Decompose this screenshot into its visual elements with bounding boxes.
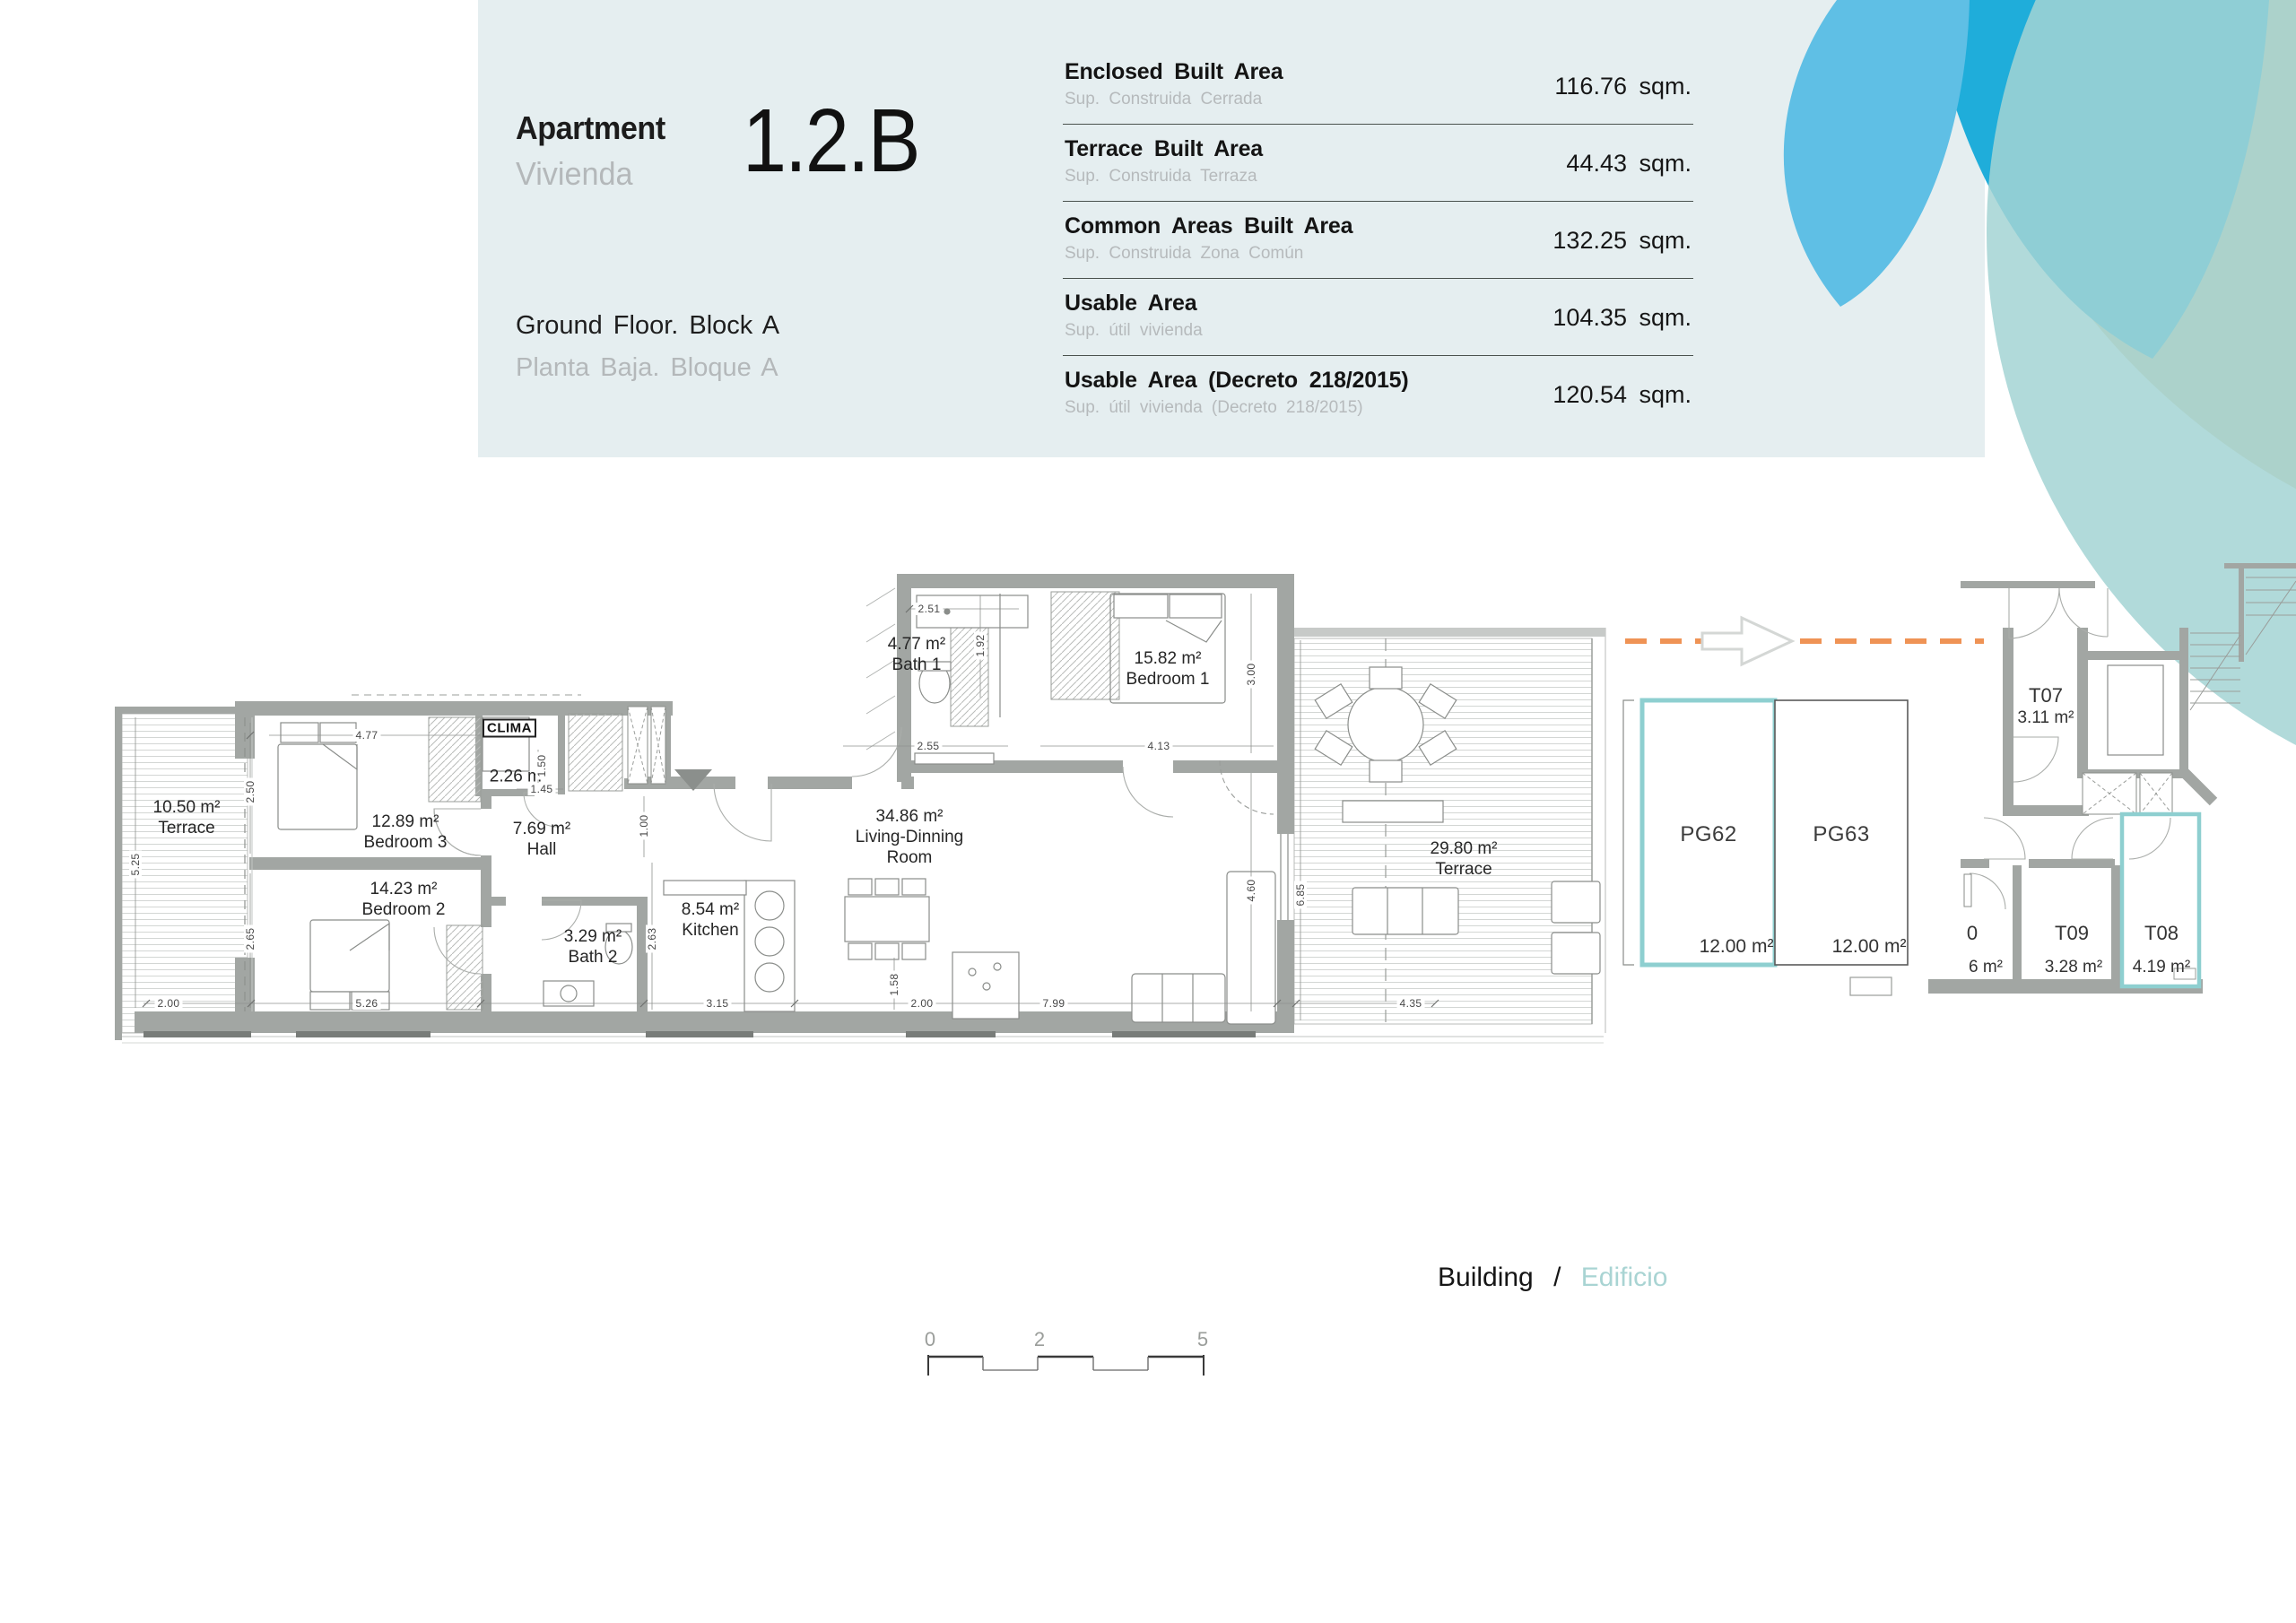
dim-label: 6.85 bbox=[1294, 881, 1307, 909]
storage-plan bbox=[1928, 563, 2296, 994]
room-label-bath2: 3.29 m² Bath 2 bbox=[564, 926, 622, 968]
area-label: Enclosed Built Area bbox=[1065, 59, 1283, 85]
parking-plan bbox=[1623, 618, 1984, 995]
room-label-terrace-right: 29.80 m² Terrace bbox=[1431, 838, 1498, 880]
scale-tick-2: 2 bbox=[1034, 1328, 1045, 1351]
dining-table bbox=[845, 879, 929, 959]
room-area: 12.89 m² bbox=[364, 811, 448, 832]
scale-bar-graphic bbox=[928, 1355, 1204, 1376]
dim-label: 1.45 bbox=[528, 783, 556, 795]
room-name: Terrace bbox=[1431, 859, 1498, 880]
area-label-es: Sup. útil vivienda bbox=[1065, 321, 1203, 341]
room-label-bath1: 4.77 m² Bath 1 bbox=[888, 634, 945, 675]
building-label: Building / Edificio bbox=[1438, 1263, 1668, 1293]
storage-id-partial: 0 bbox=[1967, 922, 1978, 945]
area-row: Enclosed Built Area Sup. Construida Cerr… bbox=[1063, 48, 1693, 124]
building-label-separator: / bbox=[1548, 1263, 1566, 1292]
area-value: 132.25 sqm. bbox=[1552, 227, 1692, 255]
scale-tick-5: 5 bbox=[1197, 1328, 1208, 1351]
storage-area-partial: 6 m² bbox=[1969, 958, 2003, 977]
dim-label: 2.50 bbox=[244, 778, 257, 806]
dim-label: 2.55 bbox=[915, 740, 943, 752]
parking-area-pg63: 12.00 m² bbox=[1832, 936, 1907, 958]
bed-bedroom2 bbox=[310, 920, 389, 1010]
dim-label: 5.26 bbox=[353, 997, 381, 1010]
room-label-clima: CLIMA bbox=[483, 719, 536, 738]
scale-tick-0: 0 bbox=[925, 1328, 935, 1351]
room-name: Bedroom 2 bbox=[362, 899, 446, 920]
area-label: Common Areas Built Area bbox=[1065, 213, 1352, 239]
room-name: Hall bbox=[513, 839, 570, 860]
area-value: 104.35 sqm. bbox=[1552, 304, 1692, 332]
room-area: 34.86 m² bbox=[838, 806, 981, 827]
room-label-living: 34.86 m² Living-Dinning Room bbox=[838, 806, 981, 869]
area-label: Usable Area bbox=[1065, 291, 1196, 317]
storage-area-t09: 3.28 m² bbox=[2045, 958, 2102, 977]
room-name: Terrace bbox=[153, 818, 221, 838]
storage-id-t07: T07 bbox=[2029, 684, 2063, 707]
bed-bedroom3 bbox=[278, 723, 357, 829]
room-label-bedroom2: 14.23 m² Bedroom 2 bbox=[362, 879, 446, 920]
room-label-bedroom3: 12.89 m² Bedroom 3 bbox=[364, 811, 448, 853]
area-value: 44.43 sqm. bbox=[1566, 150, 1692, 178]
dim-label: 7.99 bbox=[1040, 997, 1068, 1010]
unit-number: 1.2.B bbox=[743, 90, 919, 193]
dim-label: 4.35 bbox=[1397, 997, 1425, 1010]
room-label-bedroom1: 15.82 m² Bedroom 1 bbox=[1126, 648, 1210, 690]
room-area: 4.77 m² bbox=[888, 634, 945, 655]
room-name: Bedroom 3 bbox=[364, 832, 448, 853]
dim-label: 1.50 bbox=[535, 752, 548, 780]
area-value: 120.54 sqm. bbox=[1552, 381, 1692, 409]
living-sofa bbox=[952, 872, 1275, 1024]
area-table: Enclosed Built Area Sup. Construida Cerr… bbox=[1063, 48, 1693, 432]
dim-label: 2.00 bbox=[909, 997, 936, 1010]
area-row: Usable Area Sup. útil vivienda 104.35 sq… bbox=[1063, 278, 1693, 355]
room-label-terrace-left: 10.50 m² Terrace bbox=[153, 797, 221, 838]
floor-label-es: Planta Baja. Bloque A bbox=[516, 353, 778, 383]
area-row: Common Areas Built Area Sup. Construida … bbox=[1063, 201, 1693, 278]
drive-arrow-icon bbox=[1702, 618, 1792, 664]
room-area: 7.69 m² bbox=[513, 819, 570, 839]
building-label-en: Building bbox=[1438, 1263, 1534, 1292]
floor-label: Ground Floor. Block A bbox=[516, 311, 779, 341]
room-area: 10.50 m² bbox=[153, 797, 221, 818]
page: Apartment Vivienda 1.2.B Ground Floor. B… bbox=[0, 0, 2296, 1623]
parking-id-pg63: PG63 bbox=[1813, 822, 1869, 847]
dim-label: 1.58 bbox=[888, 971, 900, 999]
room-area: 14.23 m² bbox=[362, 879, 446, 899]
dim-label: 2.65 bbox=[244, 925, 257, 953]
dim-label: 2.63 bbox=[646, 925, 658, 953]
room-name: Bedroom 1 bbox=[1126, 669, 1210, 690]
room-name: Kitchen bbox=[682, 920, 739, 941]
area-label-es: Sup. útil vivienda (Decreto 218/2015) bbox=[1065, 398, 1363, 418]
storage-id-t08: T08 bbox=[2144, 922, 2179, 945]
parking-id-pg62: PG62 bbox=[1680, 822, 1736, 847]
apartment-label-es: Vivienda bbox=[516, 155, 633, 193]
dim-label: 2.51 bbox=[916, 603, 944, 615]
storage-id-t09: T09 bbox=[2055, 922, 2089, 945]
parking-area-pg62: 12.00 m² bbox=[1700, 936, 1774, 958]
room-area: 29.80 m² bbox=[1431, 838, 1498, 859]
room-name: Bath 2 bbox=[564, 947, 622, 968]
dim-label: 1.92 bbox=[974, 632, 987, 660]
dim-label: 4.13 bbox=[1145, 740, 1173, 752]
building-label-es: Edificio bbox=[1581, 1263, 1668, 1292]
area-row: Usable Area (Decreto 218/2015) Sup. útil… bbox=[1063, 355, 1693, 432]
room-area: 3.29 m² bbox=[564, 926, 622, 947]
room-area: 8.54 m² bbox=[682, 899, 739, 920]
room-label-kitchen: 8.54 m² Kitchen bbox=[682, 899, 739, 941]
area-value: 116.76 sqm. bbox=[1554, 73, 1692, 100]
room-area: 15.82 m² bbox=[1126, 648, 1210, 669]
dim-label: 4.77 bbox=[353, 729, 381, 742]
area-row: Terrace Built Area Sup. Construida Terra… bbox=[1063, 124, 1693, 201]
dim-label: 2.00 bbox=[155, 997, 183, 1010]
area-label-es: Sup. Construida Cerrada bbox=[1065, 90, 1262, 109]
dim-label: 4.60 bbox=[1245, 877, 1257, 905]
dim-label: 5.25 bbox=[129, 851, 142, 879]
area-label: Usable Area (Decreto 218/2015) bbox=[1065, 368, 1409, 394]
area-label: Terrace Built Area bbox=[1065, 136, 1263, 162]
dim-label: 1.00 bbox=[638, 812, 650, 840]
dim-label: 3.00 bbox=[1245, 661, 1257, 689]
dim-label: 3.15 bbox=[704, 997, 732, 1010]
room-name: Living-Dinning Room bbox=[838, 827, 981, 868]
area-label-es: Sup. Construida Zona Común bbox=[1065, 244, 1303, 264]
apartment-label: Apartment bbox=[516, 109, 665, 147]
storage-area-t07: 3.11 m² bbox=[2017, 708, 2074, 728]
room-name: Bath 1 bbox=[888, 655, 945, 675]
room-label-hall: 7.69 m² Hall bbox=[513, 819, 570, 860]
storage-area-t08: 4.19 m² bbox=[2133, 958, 2190, 977]
area-label-es: Sup. Construida Terraza bbox=[1065, 167, 1257, 187]
